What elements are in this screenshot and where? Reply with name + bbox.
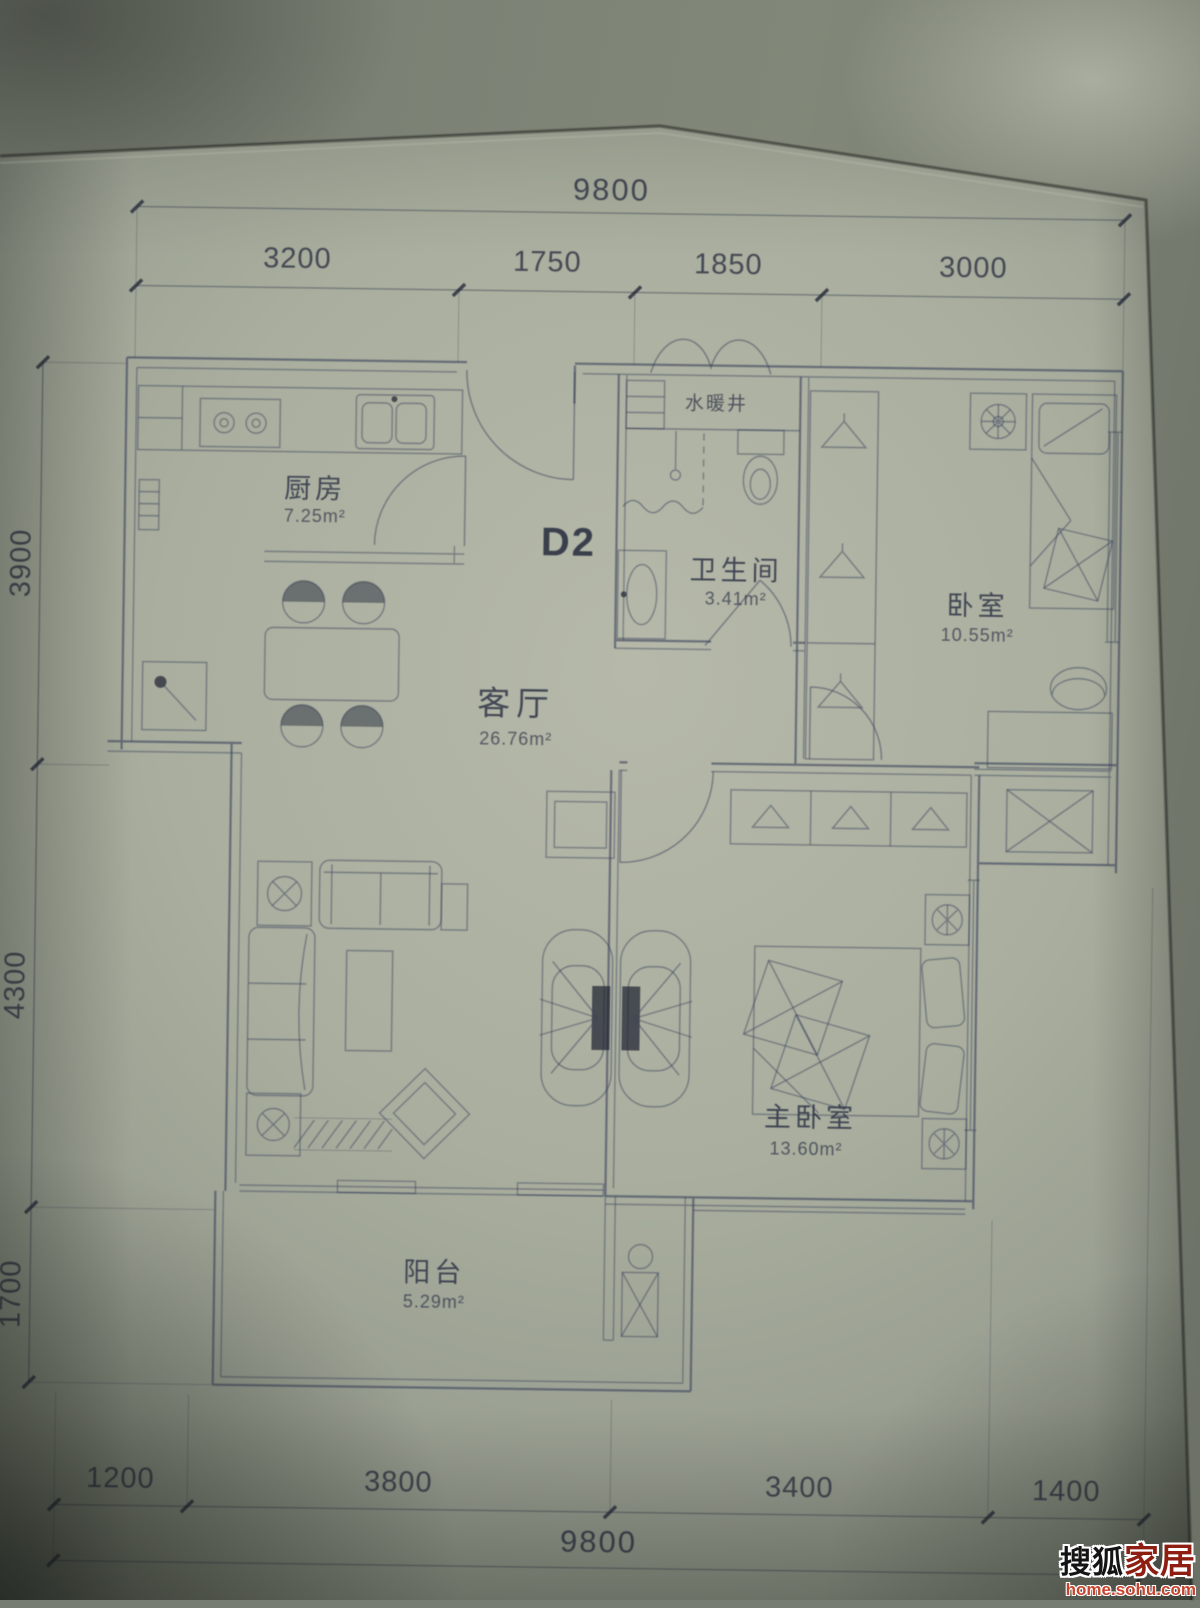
photo-background: 9800 3200 1750 1850 3000 [0,0,1200,1600]
paper-edge [0,0,1200,1600]
